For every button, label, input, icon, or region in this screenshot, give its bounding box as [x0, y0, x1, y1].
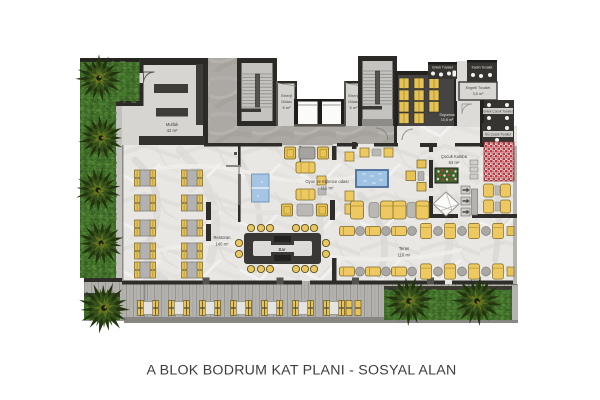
- svg-text:Teras: Teras: [399, 246, 409, 251]
- svg-text:Kız Çocuk Tuvalet: Kız Çocuk Tuvalet: [485, 133, 511, 137]
- svg-text:Kadın Tuvalet: Kadın Tuvalet: [472, 66, 493, 70]
- svg-text:Erkek Çocuk Tuvalet: Erkek Çocuk Tuvalet: [483, 110, 512, 114]
- svg-text:5 m²: 5 m²: [350, 105, 359, 110]
- svg-text:Enerji: Enerji: [281, 93, 291, 98]
- svg-text:Restoran: Restoran: [214, 235, 232, 240]
- svg-text:Bar: Bar: [278, 247, 286, 252]
- svg-text:A BLOK BODRUM KAT PLANI - SOSY: A BLOK BODRUM KAT PLANI - SOSYAL ALAN: [147, 363, 457, 379]
- svg-text:Çocuk Kulübü: Çocuk Kulübü: [441, 154, 468, 159]
- svg-text:140 m²: 140 m²: [215, 242, 229, 247]
- svg-text:110 m²: 110 m²: [398, 253, 411, 258]
- svg-text:5 m²: 5 m²: [283, 105, 292, 110]
- svg-text:Enerji: Enerji: [348, 93, 358, 98]
- svg-text:3,5 m²: 3,5 m²: [473, 92, 484, 96]
- svg-text:42 m²: 42 m²: [167, 128, 178, 133]
- svg-text:115 m²: 115 m²: [321, 186, 334, 191]
- svg-text:Engelli Tuvalet: Engelli Tuvalet: [466, 86, 492, 90]
- svg-text:Oyun ve Eğlence odası: Oyun ve Eğlence odası: [305, 179, 348, 184]
- svg-text:Odası: Odası: [281, 99, 292, 104]
- svg-text:Erkek Tuvalet: Erkek Tuvalet: [432, 66, 453, 70]
- svg-text:Soyunma: Soyunma: [439, 113, 454, 117]
- svg-text:10,5 m²: 10,5 m²: [441, 118, 454, 122]
- svg-text:Mutfak: Mutfak: [166, 122, 179, 127]
- svg-text:53 m²: 53 m²: [449, 160, 460, 165]
- svg-text:Odası: Odası: [348, 99, 359, 104]
